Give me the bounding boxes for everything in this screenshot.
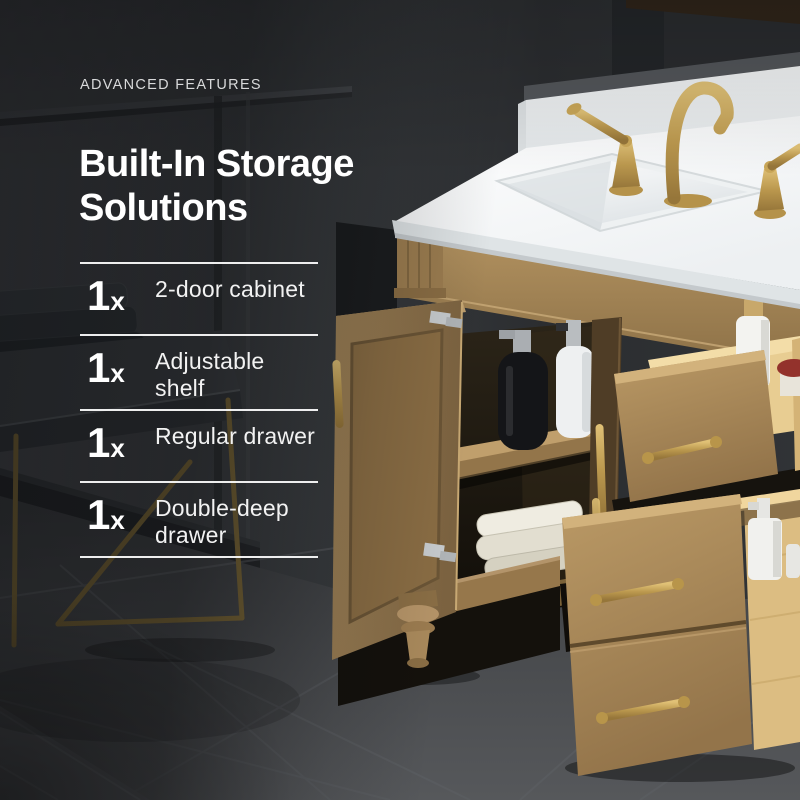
feature-quantity: 1x <box>80 420 155 466</box>
feature-item-regular-drawer: 1x Regular drawer <box>80 409 318 481</box>
feature-name: Double-deep drawer <box>155 492 318 549</box>
feature-quantity: 1x <box>80 345 155 391</box>
product-feature-image: ADVANCED FEATURES Built-In Storage Solut… <box>0 0 800 800</box>
feature-item-double-deep-drawer: 1x Double-deep drawer <box>80 481 318 558</box>
feature-quantity: 1x <box>80 273 155 319</box>
feature-item-2-door-cabinet: 1x 2-door cabinet <box>80 262 318 334</box>
eyebrow-label: ADVANCED FEATURES <box>80 77 262 93</box>
feature-name: Regular drawer <box>155 420 318 450</box>
feature-list: 1x 2-door cabinet 1x Adjustable shelf 1x… <box>80 262 318 558</box>
text-overlay: ADVANCED FEATURES Built-In Storage Solut… <box>0 0 800 800</box>
feature-quantity: 1x <box>80 492 155 538</box>
title-line-1: Built-In Storage <box>79 142 354 186</box>
feature-item-adjustable-shelf: 1x Adjustable shelf <box>80 334 318 409</box>
feature-name: 2-door cabinet <box>155 273 318 303</box>
title-line-2: Solutions <box>79 186 354 230</box>
feature-name: Adjustable shelf <box>155 345 318 402</box>
page-title: Built-In Storage Solutions <box>79 142 354 230</box>
